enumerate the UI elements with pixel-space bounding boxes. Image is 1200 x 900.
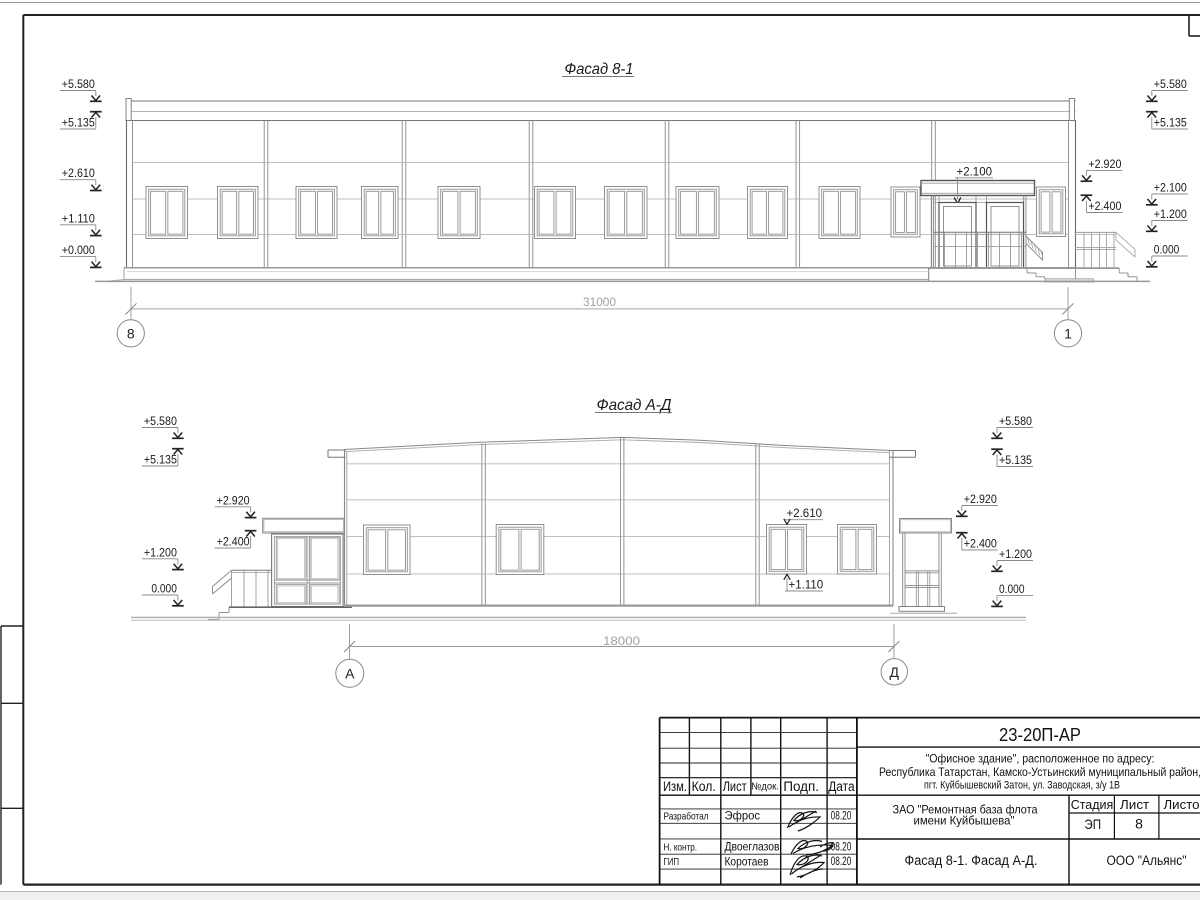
- svg-text:пгт. Куйбышевский Затон, ул. З: пгт. Куйбышевский Затон, ул. Заводская, …: [924, 780, 1120, 792]
- svg-text:Разработал: Разработал: [664, 811, 709, 823]
- svg-text:1: 1: [1064, 325, 1072, 341]
- svg-text:А: А: [345, 665, 355, 681]
- svg-text:Листов: Листов: [1164, 797, 1200, 812]
- svg-text:+5.135: +5.135: [999, 455, 1032, 467]
- svg-text:08.20: 08.20: [831, 856, 852, 868]
- svg-text:Дата: Дата: [828, 779, 855, 794]
- svg-text:Лист: Лист: [1120, 797, 1149, 812]
- svg-text:18000: 18000: [603, 636, 640, 648]
- svg-text:ГИП: ГИП: [664, 856, 680, 868]
- svg-text:Стадия: Стадия: [1071, 797, 1114, 812]
- svg-text:+5.580: +5.580: [999, 416, 1032, 428]
- svg-text:Коротаев: Коротаев: [725, 854, 769, 868]
- svg-text:+5.580: +5.580: [1154, 79, 1187, 91]
- svg-text:Подп.: Подп.: [783, 779, 819, 794]
- svg-text:+5.580: +5.580: [144, 416, 177, 428]
- svg-text:31000: 31000: [583, 297, 616, 309]
- svg-text:Фасад 8-1. Фасад А-Д.: Фасад 8-1. Фасад А-Д.: [905, 853, 1038, 868]
- svg-text:+1.200: +1.200: [999, 549, 1032, 561]
- svg-text:+1.110: +1.110: [62, 213, 95, 225]
- svg-text:+5.135: +5.135: [1154, 118, 1187, 130]
- svg-text:Кол.: Кол.: [692, 779, 716, 794]
- svg-text:Эфрос: Эфрос: [725, 809, 761, 823]
- svg-text:+5.135: +5.135: [62, 118, 95, 130]
- svg-text:+2.100: +2.100: [957, 167, 993, 179]
- svg-text:+1.110: +1.110: [789, 580, 824, 592]
- svg-text:+2.400: +2.400: [964, 539, 997, 551]
- svg-text:+2.920: +2.920: [217, 495, 250, 507]
- svg-text:Лист: Лист: [723, 779, 747, 794]
- svg-text:Н. контр.: Н. контр.: [664, 841, 698, 853]
- svg-text:Двоеглазов: Двоеглазов: [725, 840, 780, 853]
- svg-text:Изм.: Изм.: [663, 779, 687, 794]
- svg-text:+2.100: +2.100: [1154, 183, 1187, 195]
- svg-text:+0.000: +0.000: [62, 245, 95, 257]
- svg-text:08.20: 08.20: [831, 841, 852, 853]
- svg-text:имени Куйбышева": имени Куйбышева": [914, 814, 1015, 828]
- svg-text:8: 8: [127, 325, 135, 341]
- svg-text:0.000: 0.000: [999, 584, 1025, 596]
- svg-text:0.000: 0.000: [151, 584, 177, 596]
- svg-text:+2.400: +2.400: [217, 537, 250, 549]
- svg-text:+1.200: +1.200: [1154, 209, 1187, 221]
- svg-text:ЭП: ЭП: [1084, 816, 1101, 832]
- svg-text:Фасад А-Д: Фасад А-Д: [597, 397, 672, 414]
- svg-text:Фасад 8-1: Фасад 8-1: [565, 61, 634, 78]
- svg-text:+1.200: +1.200: [144, 547, 177, 559]
- svg-text:+2.920: +2.920: [964, 494, 997, 506]
- svg-text:+2.400: +2.400: [1088, 201, 1121, 213]
- svg-text:23-20П-АР: 23-20П-АР: [999, 725, 1081, 745]
- svg-text:"Офисное здание", расположенно: "Офисное здание", расположенное по адрес…: [926, 752, 1155, 766]
- svg-text:Республика Татарстан, Камско-У: Республика Татарстан, Камско-Устьинский …: [879, 765, 1200, 779]
- svg-text:+5.135: +5.135: [144, 455, 177, 467]
- svg-text:№док.: №док.: [751, 782, 779, 793]
- svg-text:+2.610: +2.610: [787, 508, 823, 520]
- svg-text:08.20: 08.20: [831, 811, 852, 823]
- svg-text:8: 8: [1135, 816, 1143, 832]
- svg-text:0.000: 0.000: [1154, 245, 1180, 257]
- svg-text:Д: Д: [890, 664, 900, 680]
- svg-text:ООО "Альянс": ООО "Альянс": [1107, 853, 1187, 868]
- svg-text:+2.920: +2.920: [1088, 159, 1121, 171]
- svg-text:+5.580: +5.580: [62, 79, 95, 91]
- svg-text:+2.610: +2.610: [62, 168, 95, 180]
